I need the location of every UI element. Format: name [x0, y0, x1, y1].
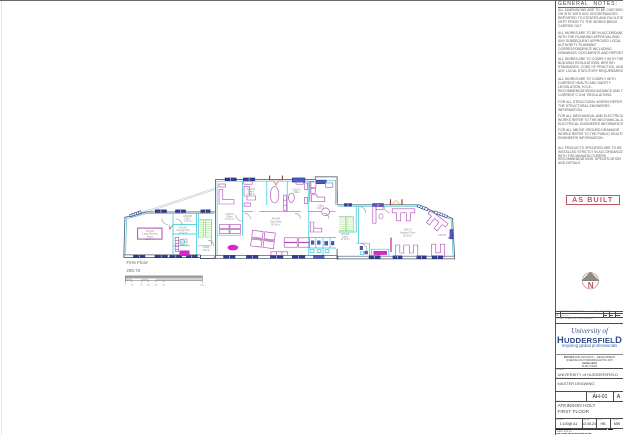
svg-text:11.48 m²: 11.48 m²	[247, 193, 256, 196]
svg-text:95.14 m²: 95.14 m²	[271, 223, 280, 226]
svg-text:Open office: Open office	[270, 221, 282, 223]
svg-text:AH/1/01: AH/1/01	[146, 230, 155, 233]
svg-text:AH/1/0B: AH/1/0B	[183, 215, 192, 218]
svg-text:AH/1/04: AH/1/04	[272, 217, 281, 220]
svg-text:AH/1/0x: AH/1/0x	[292, 188, 301, 191]
svg-text:Facilities Office: Facilities Office	[400, 231, 416, 234]
svg-text:11.72 m²: 11.72 m²	[341, 238, 350, 241]
svg-text:7.35 m²: 7.35 m²	[202, 249, 210, 252]
svg-text:21.66 m²: 21.66 m²	[145, 238, 154, 241]
svg-text:Large Meeting: Large Meeting	[143, 233, 158, 236]
svg-text:17.31 m²: 17.31 m²	[225, 218, 234, 221]
svg-text:7.31 m²: 7.31 m²	[184, 220, 192, 223]
svg-text:AH/1/0C: AH/1/0C	[179, 226, 188, 229]
svg-text:AH/1/07: AH/1/07	[403, 228, 412, 231]
svg-text:11.62 m²: 11.62 m²	[179, 232, 188, 235]
svg-text:AH/1/02: AH/1/02	[247, 188, 256, 191]
svg-text:55.03 m²: 55.03 m²	[403, 234, 412, 237]
svg-text:15.0 m²: 15.0 m²	[317, 207, 325, 210]
svg-text:Office: Office	[294, 192, 301, 194]
svg-text:Acc WC: Acc WC	[180, 241, 189, 244]
svg-text:AH/1/05: AH/1/05	[341, 233, 350, 236]
svg-text:3.05 m²: 3.05 m²	[180, 244, 188, 247]
svg-text:Room: Room	[147, 236, 153, 238]
svg-text:100.7%: 100.7%	[438, 235, 446, 237]
svg-text:AH/1/03: AH/1/03	[225, 213, 234, 216]
svg-text:AH/1/0D: AH/1/0D	[180, 238, 189, 241]
